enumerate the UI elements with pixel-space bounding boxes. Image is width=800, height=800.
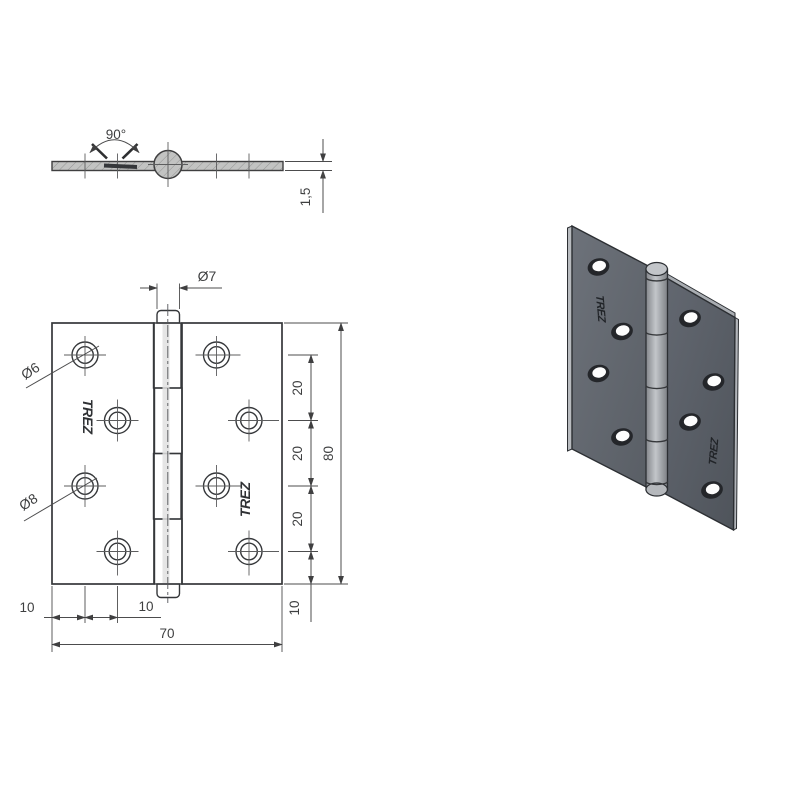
front-view: TREZ TREZ Ø7 Ø6 Ø8 bbox=[16, 268, 348, 652]
brand-stamp-3d-left: TREZ bbox=[593, 295, 608, 324]
screw-hole bbox=[97, 531, 139, 576]
profile-view: 90° 1,5 bbox=[52, 127, 332, 213]
hole-spacing-label-3: 20 bbox=[290, 511, 305, 526]
brand-stamp-front-right: TREZ bbox=[237, 482, 253, 518]
pin-diameter-dimension: Ø7 bbox=[140, 268, 222, 309]
right-leaf bbox=[182, 323, 282, 584]
horizontal-dimensions: 10 10 70 bbox=[19, 586, 282, 652]
hole-diameter-large-label: Ø8 bbox=[16, 490, 41, 514]
pin-top-cap-3d bbox=[646, 263, 667, 276]
hole-diameter-small-callout: Ø6 bbox=[18, 346, 99, 388]
brand-stamp-front-left: TREZ bbox=[80, 399, 96, 435]
screw-hole bbox=[228, 400, 279, 442]
screw-hole bbox=[196, 336, 241, 376]
screw-hole bbox=[64, 336, 106, 376]
knuckle-column bbox=[154, 304, 183, 603]
opening-angle-label: 90° bbox=[106, 127, 126, 142]
closed-leaf-mark bbox=[104, 166, 137, 168]
drawing-page: 90° 1,5 bbox=[0, 0, 800, 800]
hole-spacing-label-1: 20 bbox=[290, 380, 305, 395]
perspective-view: TREZ TREZ bbox=[568, 226, 739, 530]
hinge-technical-drawing: 90° 1,5 bbox=[0, 0, 800, 800]
leaf-height-label: 80 bbox=[321, 446, 336, 461]
left-leaf-3d bbox=[572, 226, 656, 492]
leaf-width-label: 70 bbox=[159, 626, 174, 641]
screw-hole bbox=[196, 465, 241, 507]
vertical-dimensions: 20 20 20 10 80 bbox=[284, 323, 348, 622]
screw-hole bbox=[64, 465, 106, 507]
barrel-3d bbox=[646, 263, 668, 497]
screw-holes bbox=[64, 336, 279, 576]
opening-angle-annotation: 90° bbox=[90, 127, 139, 159]
hole-diameter-small-label: Ø6 bbox=[18, 359, 43, 383]
hole-spacing-label-2: 20 bbox=[290, 446, 305, 461]
pin-highlight bbox=[163, 324, 170, 583]
screw-hole bbox=[97, 400, 139, 442]
hole-column-offset-label: 10 bbox=[138, 599, 153, 614]
screw-hole bbox=[228, 531, 279, 576]
edge-hole-offset-label: 10 bbox=[19, 600, 34, 615]
thickness-label: 1,5 bbox=[298, 188, 313, 207]
thickness-dimension: 1,5 bbox=[285, 139, 332, 213]
brand-stamp-3d-right: TREZ bbox=[707, 436, 721, 467]
pin-diameter-label: Ø7 bbox=[198, 268, 217, 284]
left-leaf bbox=[52, 323, 154, 584]
bottom-hole-offset-label: 10 bbox=[287, 600, 302, 615]
